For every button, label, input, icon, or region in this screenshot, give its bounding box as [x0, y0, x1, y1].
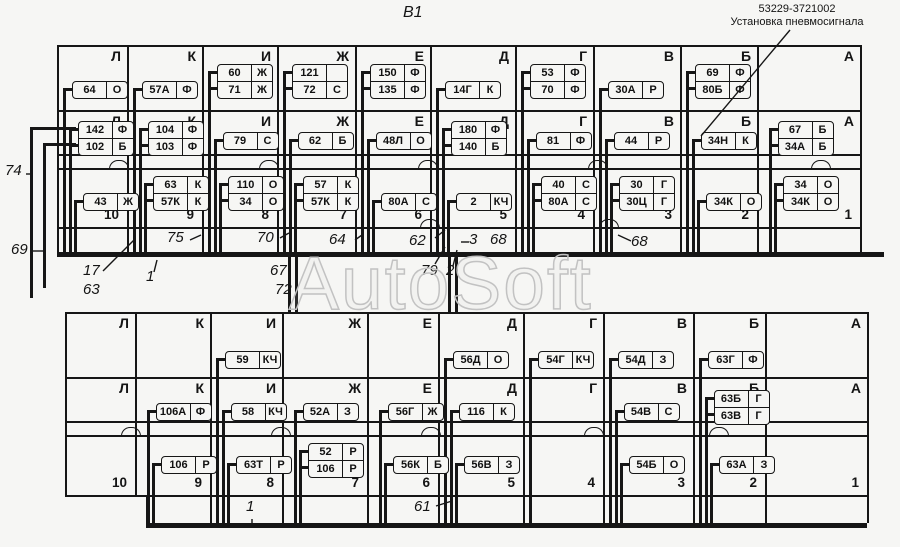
callout-label: 62: [409, 232, 426, 249]
callout-label: 3: [469, 231, 477, 248]
callout-label: 72: [275, 281, 292, 298]
leader-line: [190, 235, 201, 240]
callout-label: 63: [83, 281, 100, 298]
callout-label: 68: [631, 233, 648, 250]
callout-label: 69: [11, 241, 28, 258]
leader-line: [355, 235, 362, 240]
callout-label: 2: [446, 262, 454, 279]
callout-label: 74: [5, 162, 22, 179]
leader-line: [435, 230, 445, 238]
callout-label: 1: [246, 498, 254, 515]
callout-label: 64: [329, 231, 346, 248]
callout-label: 70: [257, 229, 274, 246]
leader-line: [436, 501, 452, 506]
leader-line: [103, 239, 135, 271]
callout-label: 75: [167, 229, 184, 246]
callout-label: 61: [414, 498, 431, 515]
leader-line: [154, 260, 157, 272]
wiring-diagram-canvas: В1 53229-3721002 Установка пневмосигнала…: [0, 0, 900, 547]
callout-label: 68: [490, 231, 507, 248]
callout-label: 17: [83, 262, 100, 279]
callout-label: 79: [421, 262, 438, 279]
callout-label: 67: [270, 262, 287, 279]
leader-line: [618, 235, 631, 241]
leader-line: [701, 30, 790, 136]
leader-line: [280, 233, 289, 238]
callout-label: 1: [146, 268, 154, 285]
